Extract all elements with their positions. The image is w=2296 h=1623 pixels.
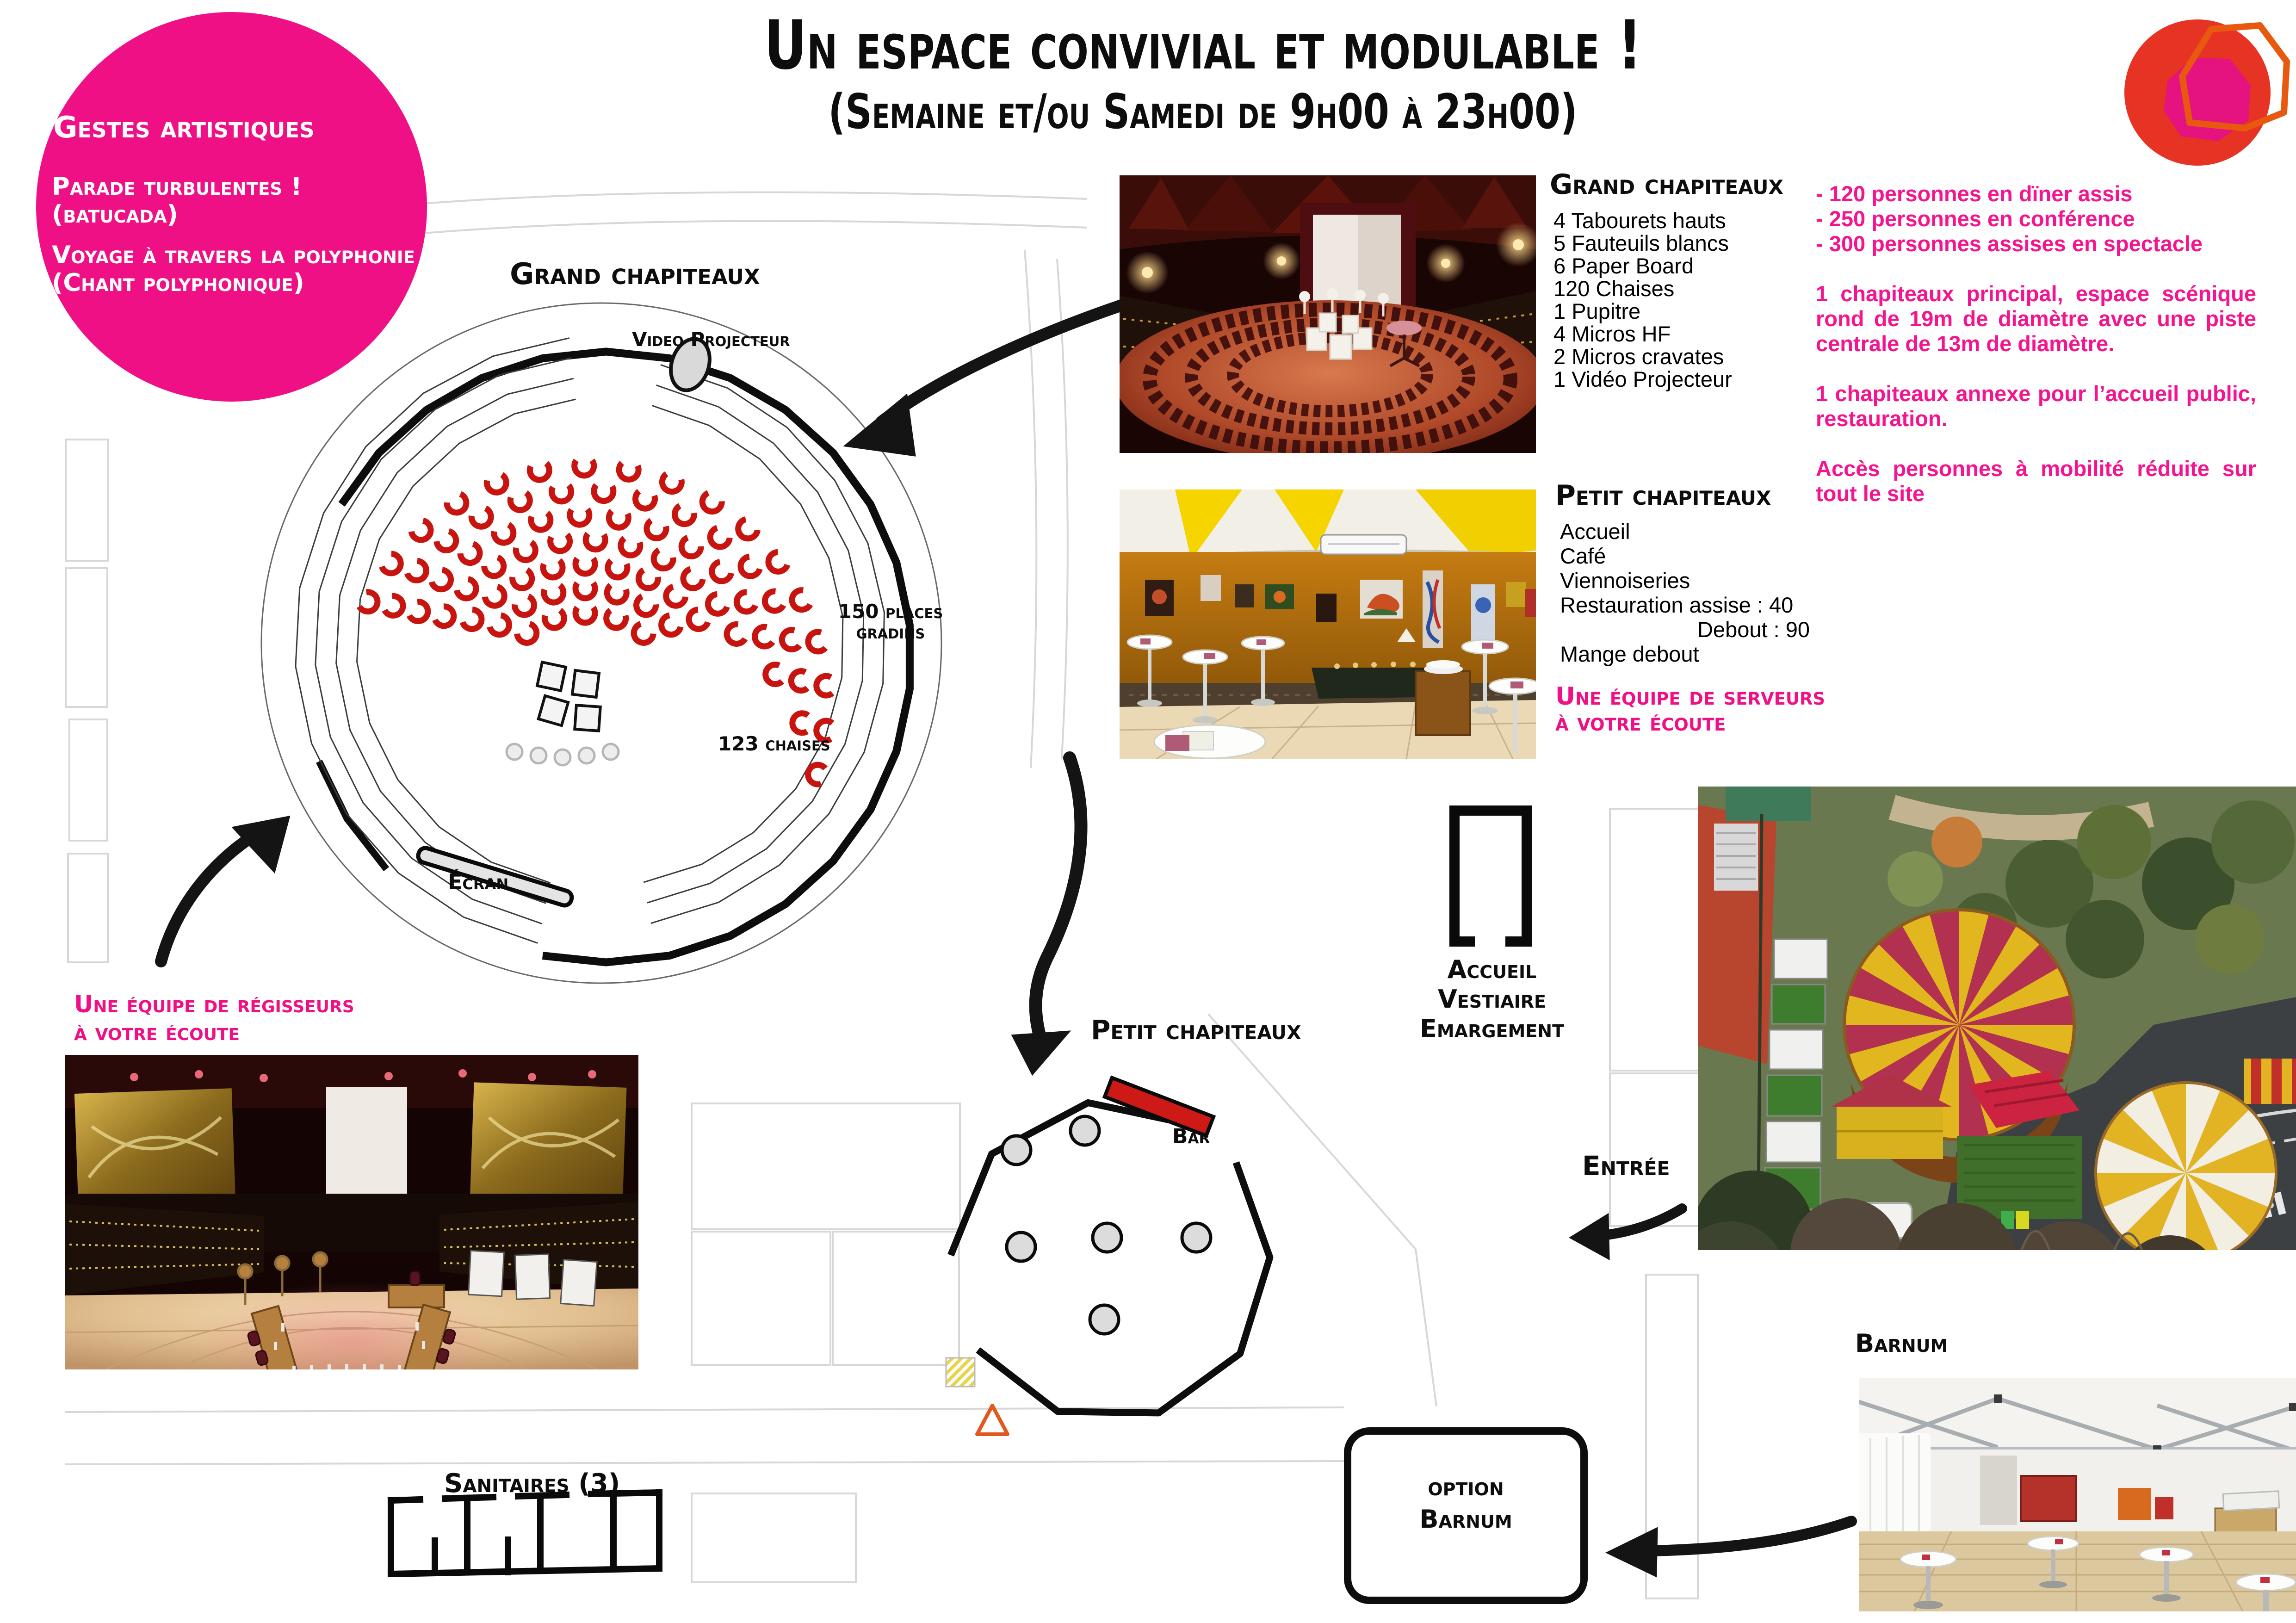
page-title: Un espace convivial et modulable ! (578, 10, 1827, 81)
capacity-bullet: - 120 personnes en dïner assis (1816, 181, 2256, 206)
list-item: 1 Vidéo Projecteur (1553, 368, 1732, 390)
capacity-paragraph: 1 chapiteaux principal, espace scénique … (1816, 281, 2256, 356)
arrow-to-grand-plan (848, 302, 1133, 454)
stage-tables (537, 662, 600, 731)
capacity-paragraph: 1 chapiteaux annexe pour l’accueil publi… (1816, 381, 2256, 431)
list-item: 120 Chaises (1553, 277, 1732, 300)
sanitaires-label: Sanitaires (3) (444, 1470, 620, 1498)
capacity-paragraph: Accès personnes à mobilité réduite sur t… (1816, 456, 2256, 506)
accueil-room-plan (1454, 811, 1527, 942)
photo-grand-chapiteau-spectacle (1120, 175, 1536, 453)
organisation-logo (2112, 7, 2292, 169)
chaises-label: 123 chaises (718, 734, 830, 754)
petit-list-title: Petit chapiteaux (1555, 481, 1771, 510)
list-item: 6 Paper Board (1553, 254, 1732, 277)
list-item: 4 Tabourets hauts (1553, 209, 1732, 232)
list-item: Restauration assise : 40 (1560, 593, 1810, 617)
photo-grand-chapiteau-conference (65, 1055, 638, 1369)
list-item: Café (1560, 544, 1810, 568)
list-item: Viennoiseries (1560, 568, 1810, 593)
page-subtitle: (Semaine et/ou Samedi de 9h00 à 23h00) (578, 87, 1827, 137)
entree-label: Entrée (1582, 1152, 1670, 1180)
petit-chapiteau-plan (951, 1078, 1270, 1413)
badge-line-batucada: (batucada) (52, 202, 178, 228)
list-item: 5 Fauteuils blancs (1553, 232, 1732, 254)
ghost-chairs (507, 744, 619, 765)
grand-list-title: Grand chapiteaux (1550, 170, 1783, 199)
list-item: Accueil (1560, 519, 1810, 544)
list-item: 2 Micros cravates (1553, 345, 1732, 368)
accueil-label: AccueilVestiaireEmargement (1406, 955, 1578, 1044)
list-item: 4 Micros HF (1553, 322, 1732, 345)
petit-list-items: Accueil Café Viennoiseries Restauration … (1560, 519, 1810, 666)
arrow-to-petit-plan (1014, 758, 1081, 1072)
poster-page: Gestes artistiques Parade turbulentes ! … (0, 0, 2296, 1623)
badge-line-chant: (Chant polyphonique) (52, 270, 304, 296)
photo-petit-chapiteau-interieur (1120, 489, 1536, 759)
grand-list-items: 4 Tabourets hauts 5 Fauteuils blancs 6 P… (1553, 209, 1732, 390)
capacity-bullet: - 300 personnes assises en spectacle (1816, 231, 2256, 256)
regisseurs-team-label: Une équipe de régisseursà votre écoute (74, 991, 354, 1047)
badge-title: Gestes artistiques (53, 112, 315, 143)
badge-line-parade: Parade turbulentes ! (52, 174, 302, 200)
photo-vue-aerienne-site (1698, 787, 2296, 1250)
places-gradins-label: 150 placesgradins (828, 601, 953, 642)
cocktail-tables (1002, 1116, 1211, 1334)
bar-label: Bar (1172, 1126, 1210, 1147)
grand-plan-label: Grand chapiteaux (510, 259, 760, 290)
list-item: Mange debout (1560, 642, 1810, 666)
photo-barnum-interieur (1859, 1378, 2296, 1611)
grand-chapiteau-plan (261, 303, 941, 983)
list-item-debout: Debout : 90 (1560, 617, 1810, 642)
serveurs-team-label: Une équipe de serveursà votre écoute (1555, 684, 1825, 735)
barnum-label: Barnum (1855, 1331, 1948, 1357)
option-barnum-label: optionBarnum (1351, 1471, 1580, 1536)
petit-plan-label: Petit chapiteaux (1091, 1016, 1301, 1044)
capacity-block: - 120 personnes en dïner assis - 250 per… (1816, 181, 2256, 506)
option-barnum-box: optionBarnum (1344, 1427, 1588, 1604)
warning-triangle-symbol (977, 1406, 1008, 1434)
sanitaires-plan (391, 1493, 659, 1574)
tent-outer-circle (261, 303, 941, 983)
video-projecteur-label: Video Projecteur (632, 329, 790, 350)
arrow-to-grand-plan-left (161, 818, 288, 961)
hazard-hatch-symbol (946, 1358, 975, 1387)
arrow-entree (1572, 1208, 1682, 1258)
capacity-bullet: - 250 personnes en conférence (1816, 206, 2256, 231)
ecran-label: Écran (448, 871, 508, 893)
list-item: 1 Pupitre (1553, 300, 1732, 322)
badge-line-voyage: Voyage à travers la polyphonie (52, 242, 415, 268)
